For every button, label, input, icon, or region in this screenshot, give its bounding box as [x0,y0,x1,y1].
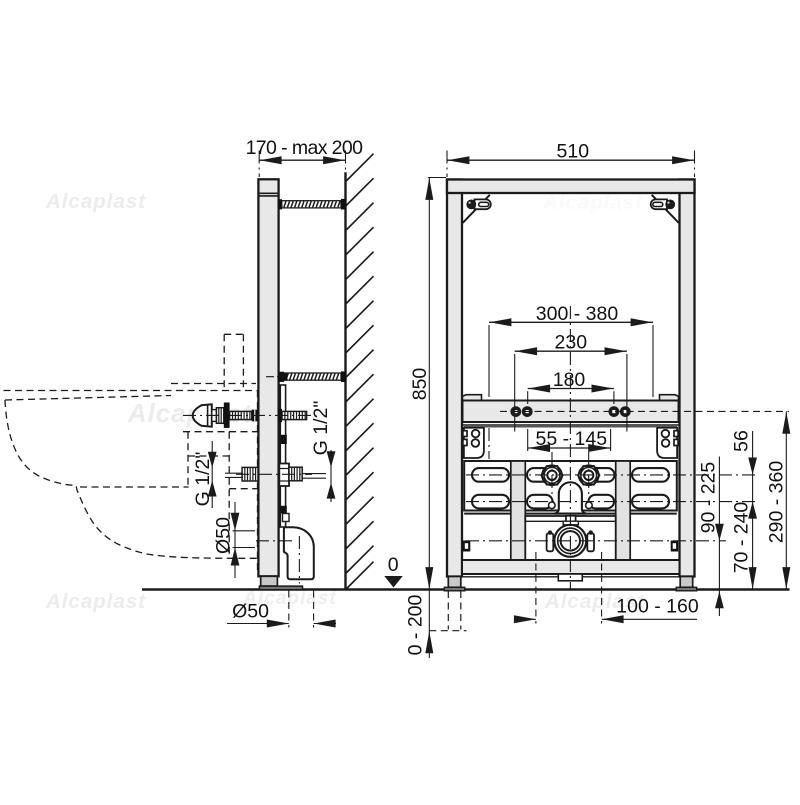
svg-text:230: 230 [555,332,588,354]
svg-text:170 - max 200: 170 - max 200 [246,137,364,159]
svg-text:56: 56 [730,430,752,452]
svg-text:290 - 360: 290 - 360 [766,461,788,544]
svg-text:0 - 200: 0 - 200 [404,594,426,655]
svg-text:180: 180 [553,369,586,391]
svg-text:70 - 240: 70 - 240 [731,502,753,574]
svg-text:Alcaplast: Alcaplast [45,190,146,213]
svg-text:Ø50: Ø50 [212,517,234,554]
svg-text:100 - 160: 100 - 160 [616,595,699,617]
svg-text:90 - 225: 90 - 225 [697,462,719,534]
svg-text:G 1/2": G 1/2" [192,452,214,507]
svg-text:Ø50: Ø50 [232,601,269,623]
svg-text:Alcaplast: Alcaplast [45,590,146,613]
svg-text:850: 850 [409,368,431,401]
svg-text:G 1/2": G 1/2" [310,401,332,456]
svg-text:510: 510 [557,140,590,162]
svg-text:0: 0 [388,554,399,576]
svg-text:300 - 380: 300 - 380 [536,303,619,325]
svg-text:Alcaplast: Alcaplast [542,191,643,214]
svg-text:55 - 145: 55 - 145 [536,428,608,450]
